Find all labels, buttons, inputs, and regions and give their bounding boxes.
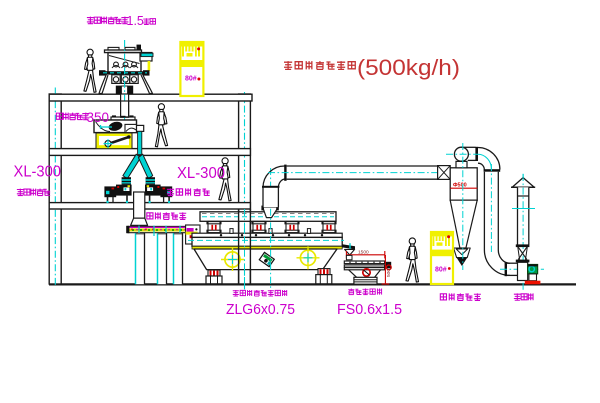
svg-text:1.5: 1.5: [127, 14, 144, 28]
svg-text:1500: 1500: [358, 249, 369, 255]
svg-text:80#: 80#: [435, 267, 447, 274]
svg-text:FS0.6x1.5: FS0.6x1.5: [337, 302, 402, 318]
svg-text:350: 350: [87, 110, 110, 125]
svg-text:XL-300: XL-300: [14, 164, 62, 181]
svg-text:80#: 80#: [185, 76, 197, 83]
svg-text:Φ500: Φ500: [453, 183, 467, 189]
svg-text:ZLG6x0.75: ZLG6x0.75: [226, 302, 295, 318]
svg-text:500: 500: [386, 269, 392, 277]
svg-text:(500kg/h): (500kg/h): [357, 55, 460, 80]
svg-text:XL-300: XL-300: [177, 165, 225, 182]
